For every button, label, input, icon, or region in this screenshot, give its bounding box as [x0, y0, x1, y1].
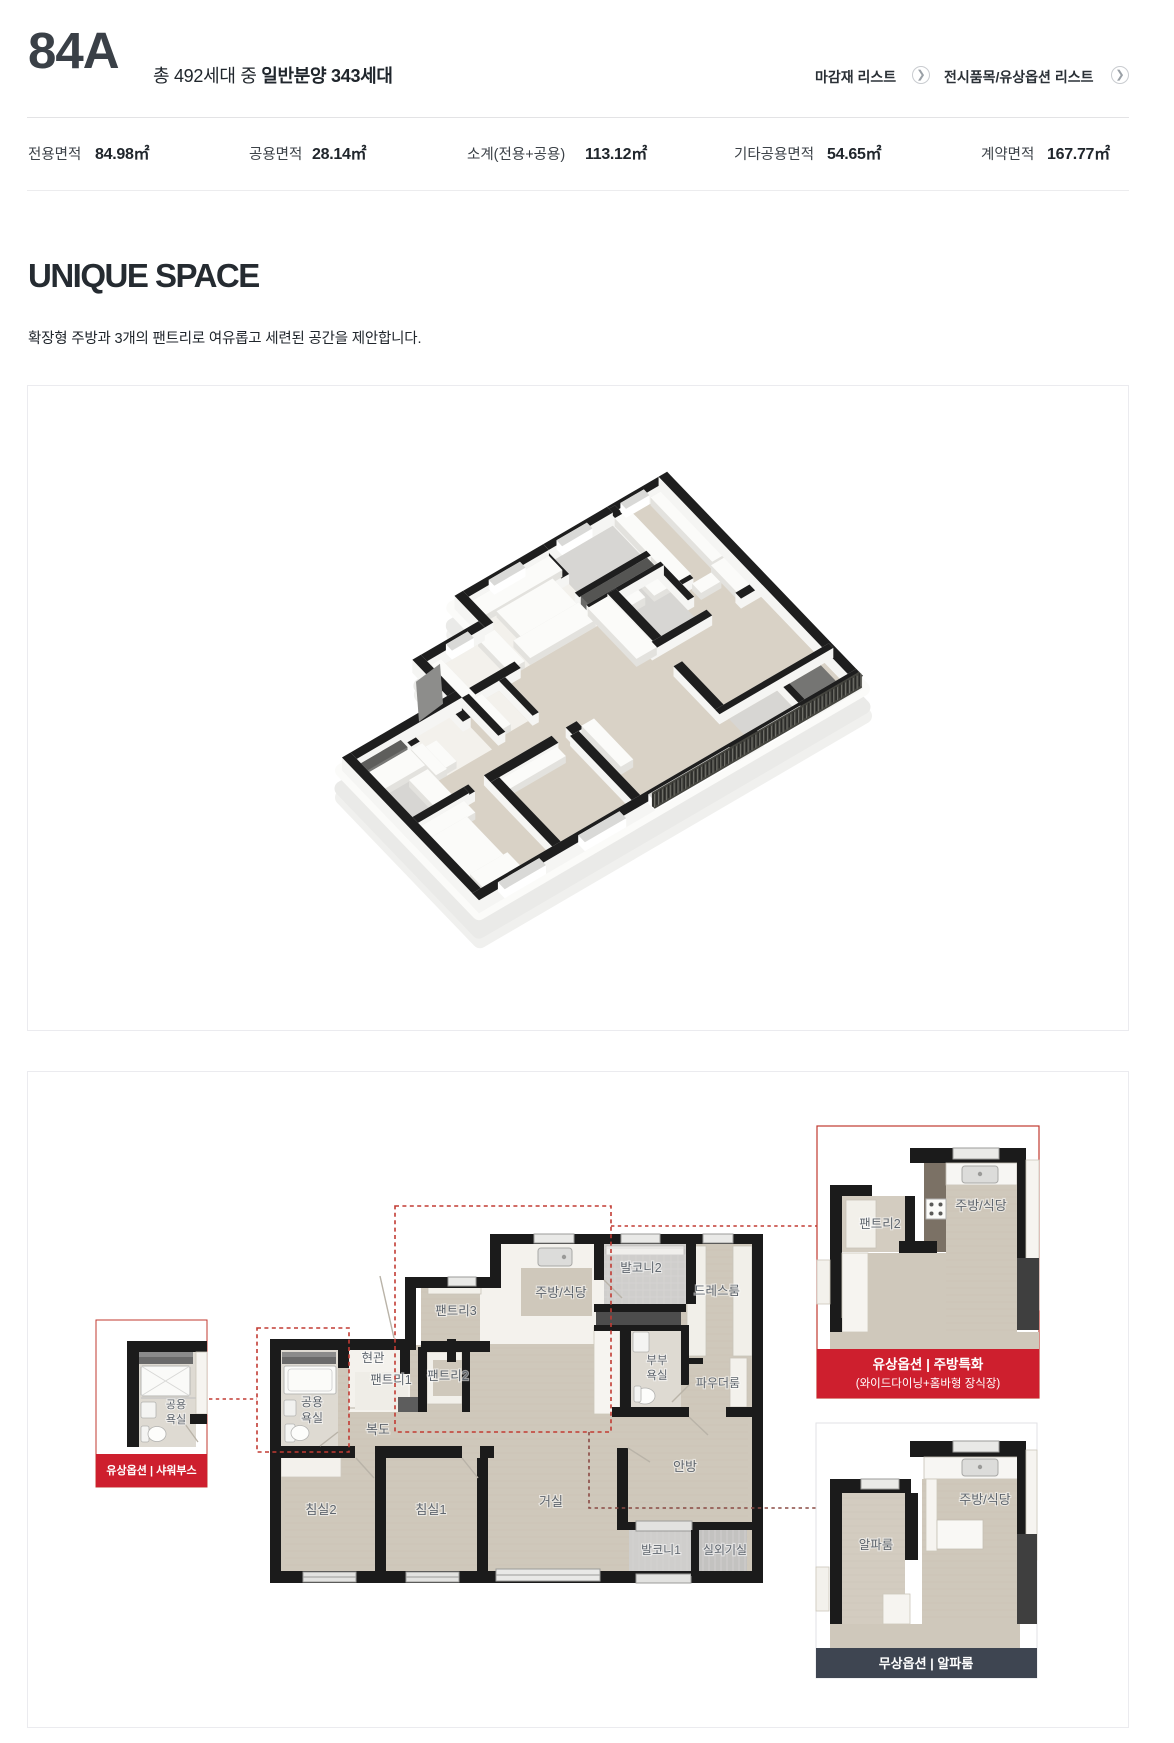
svg-text:팬트리2: 팬트리2 — [859, 1217, 901, 1231]
svg-text:안방: 안방 — [673, 1459, 697, 1474]
svg-text:실외기실: 실외기실 — [703, 1543, 747, 1557]
svg-text:공용: 공용 — [301, 1395, 323, 1409]
svg-text:공용: 공용 — [166, 1398, 186, 1411]
svg-text:욕실: 욕실 — [646, 1369, 667, 1382]
svg-text:무상옵션 | 알파룸: 무상옵션 | 알파룸 — [879, 1656, 974, 1671]
svg-text:주방/식당: 주방/식당 — [955, 1198, 1006, 1213]
svg-text:발코니1: 발코니1 — [641, 1543, 681, 1557]
svg-text:침실2: 침실2 — [305, 1502, 336, 1517]
svg-text:욕실: 욕실 — [301, 1411, 323, 1425]
svg-text:침실1: 침실1 — [415, 1502, 446, 1517]
svg-text:거실: 거실 — [539, 1494, 563, 1509]
svg-text:욕실: 욕실 — [166, 1413, 186, 1426]
svg-text:복도: 복도 — [366, 1422, 390, 1437]
svg-text:발코니2: 발코니2 — [620, 1261, 662, 1275]
svg-text:유상옵션 | 샤워부스: 유상옵션 | 샤워부스 — [106, 1463, 196, 1477]
svg-text:(와이드다이닝+홈바형 장식장): (와이드다이닝+홈바형 장식장) — [856, 1376, 1001, 1390]
svg-text:주방/식당: 주방/식당 — [535, 1285, 586, 1300]
svg-text:팬트리1: 팬트리1 — [370, 1373, 412, 1387]
svg-text:주방/식당: 주방/식당 — [959, 1492, 1010, 1507]
svg-text:팬트리2: 팬트리2 — [427, 1369, 469, 1383]
svg-text:알파룸: 알파룸 — [859, 1538, 894, 1552]
svg-text:부부: 부부 — [646, 1354, 667, 1367]
svg-text:유상옵션 | 주방특화: 유상옵션 | 주방특화 — [873, 1356, 984, 1372]
svg-text:드레스룸: 드레스룸 — [694, 1284, 740, 1298]
svg-text:팬트리3: 팬트리3 — [435, 1304, 477, 1318]
svg-text:파우더룸: 파우더룸 — [696, 1376, 740, 1390]
svg-text:현관: 현관 — [361, 1351, 385, 1365]
